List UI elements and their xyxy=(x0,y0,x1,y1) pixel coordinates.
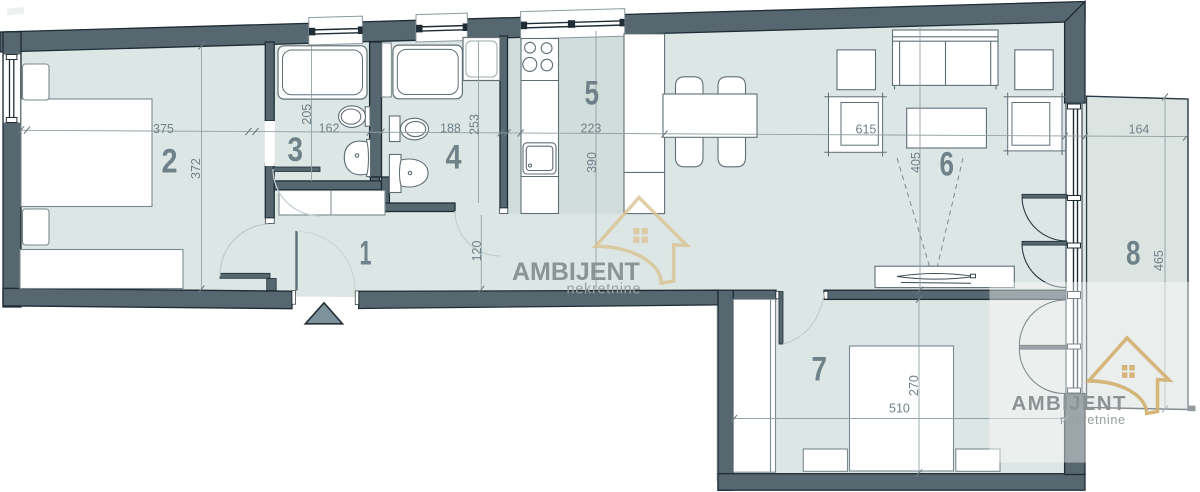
svg-text:3: 3 xyxy=(288,131,304,169)
svg-text:7: 7 xyxy=(812,351,828,389)
svg-text:nekretnine: nekretnine xyxy=(567,282,642,298)
svg-text:120: 120 xyxy=(470,240,484,261)
svg-text:162: 162 xyxy=(319,121,340,135)
svg-text:465: 465 xyxy=(1152,250,1166,271)
svg-text:2: 2 xyxy=(162,143,178,181)
svg-text:615: 615 xyxy=(856,123,877,137)
svg-text:270: 270 xyxy=(907,375,921,396)
svg-text:164: 164 xyxy=(1129,122,1150,136)
svg-text:510: 510 xyxy=(889,402,910,416)
svg-text:188: 188 xyxy=(440,122,461,136)
svg-text:223: 223 xyxy=(581,121,602,135)
svg-text:5: 5 xyxy=(585,75,600,113)
svg-text:6: 6 xyxy=(940,146,955,184)
svg-text:8: 8 xyxy=(1126,235,1141,273)
svg-text:4: 4 xyxy=(446,139,462,177)
svg-text:372: 372 xyxy=(189,158,203,179)
svg-text:405: 405 xyxy=(909,152,923,173)
svg-text:1: 1 xyxy=(360,235,372,273)
svg-text:375: 375 xyxy=(153,122,174,136)
svg-text:390: 390 xyxy=(585,152,599,173)
svg-text:nekretnine: nekretnine xyxy=(1060,412,1126,427)
svg-text:253: 253 xyxy=(468,114,482,135)
svg-text:205: 205 xyxy=(300,104,314,125)
